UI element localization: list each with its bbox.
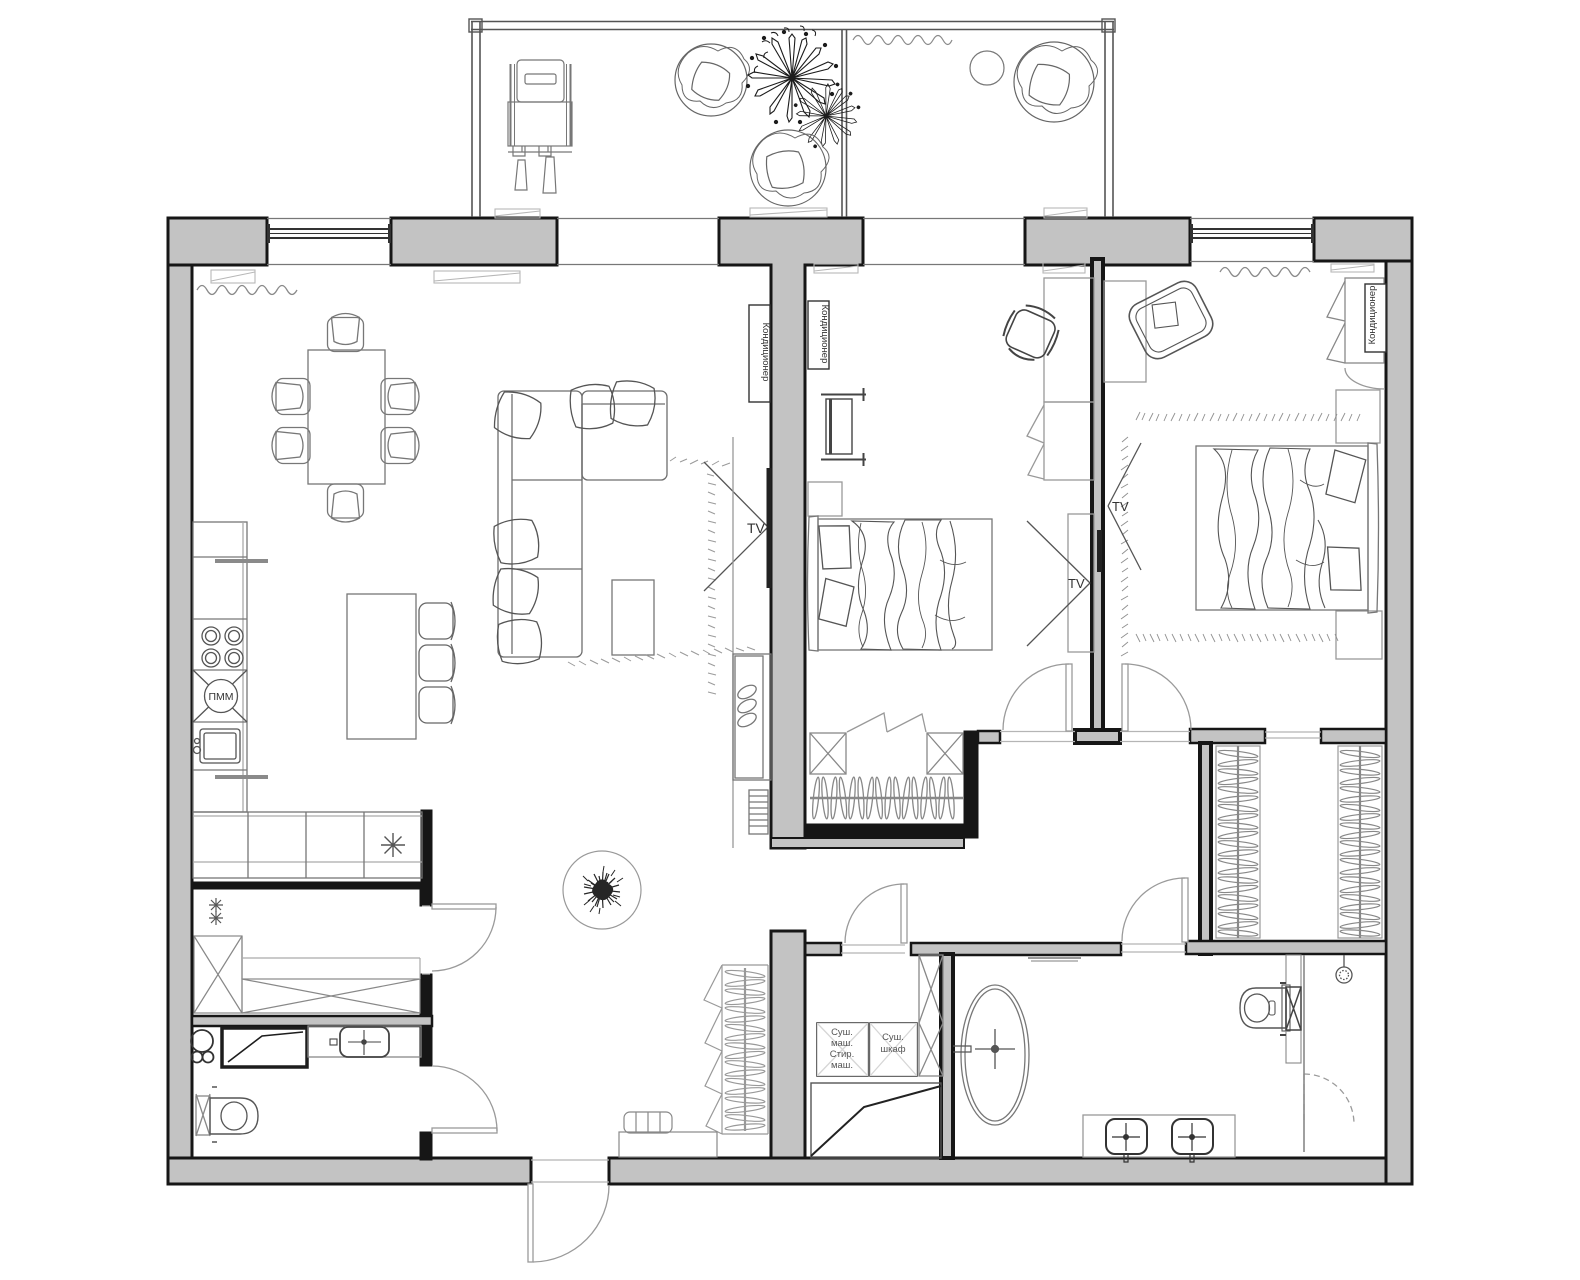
svg-text:Кондиционер: Кондиционер (819, 305, 830, 364)
svg-text:маш.: маш. (831, 1060, 853, 1071)
svg-text:TV: TV (1068, 576, 1085, 591)
svg-text:Кондиционер: Кондиционер (1367, 286, 1378, 345)
svg-text:Кондиционер: Кондиционер (760, 323, 771, 382)
svg-text:Суш.: Суш. (882, 1032, 904, 1043)
svg-text:ПММ: ПММ (208, 691, 233, 703)
svg-text:TV: TV (747, 520, 766, 536)
svg-text:Суш.: Суш. (831, 1027, 853, 1038)
svg-text:Стир.: Стир. (830, 1049, 854, 1060)
svg-text:маш.: маш. (831, 1038, 853, 1049)
svg-text:TV: TV (1112, 499, 1129, 514)
svg-text:шкаф: шкаф (880, 1044, 905, 1055)
